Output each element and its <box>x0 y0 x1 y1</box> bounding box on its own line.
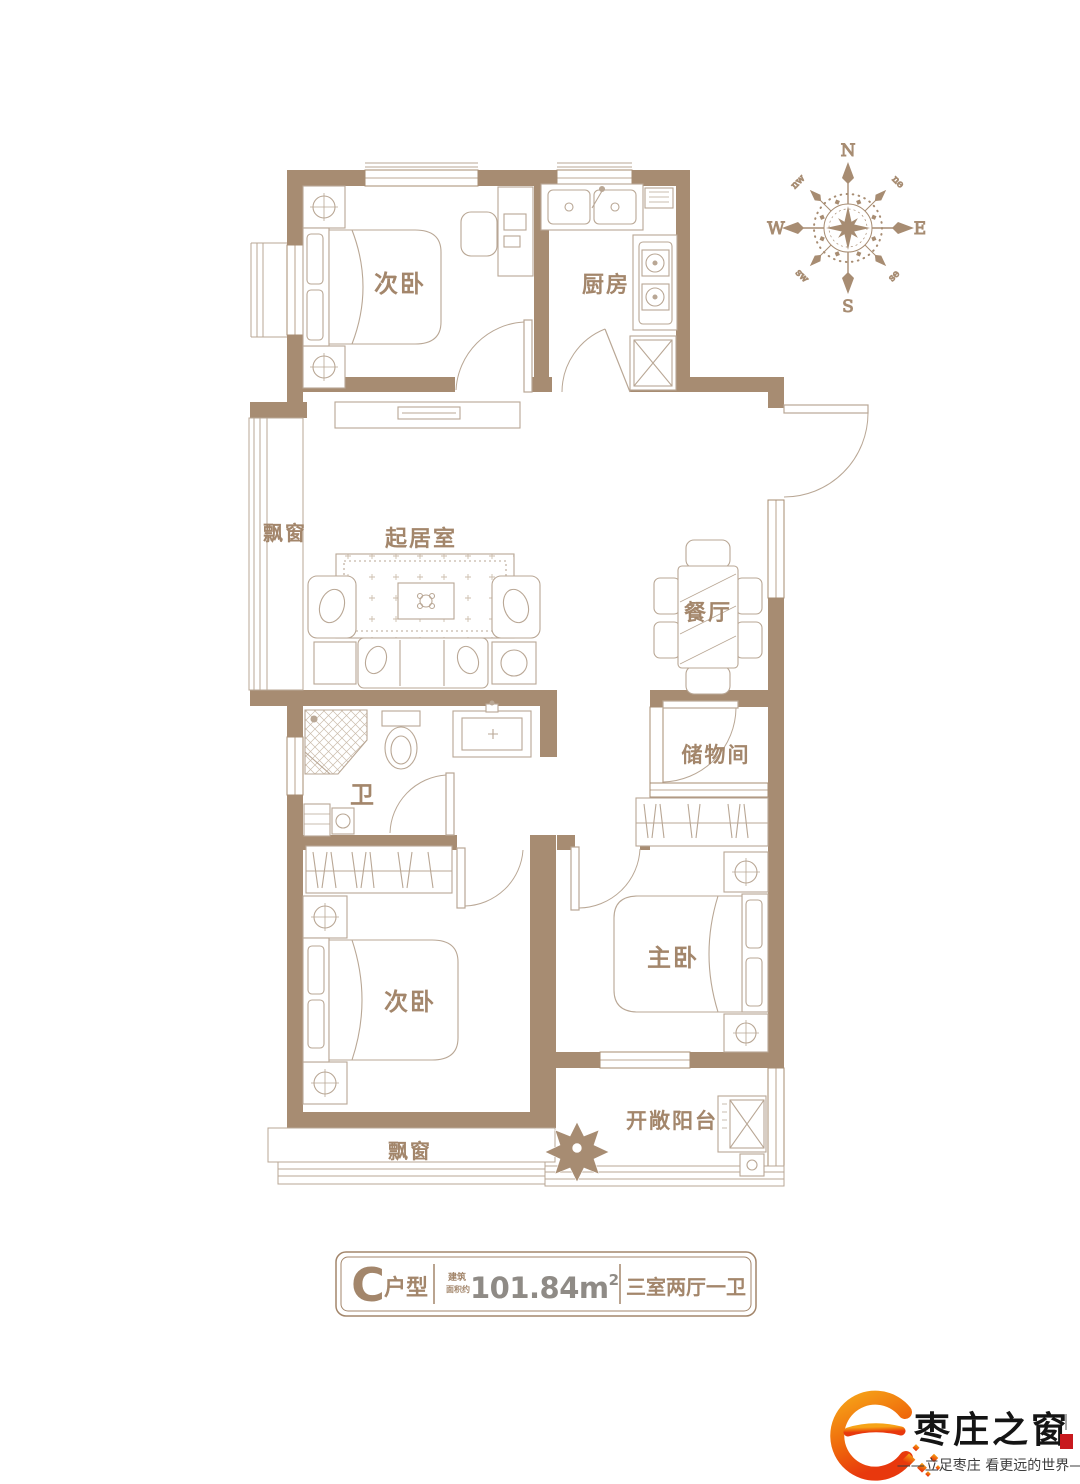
storage-door <box>663 701 738 782</box>
bathroom-door <box>390 773 454 835</box>
coffee-table <box>398 583 454 619</box>
armchair-right <box>492 576 540 638</box>
vanity-sink <box>453 701 531 757</box>
info-bar: C 户型 建筑 面积约 101.84m2 三室两厅一卫 <box>336 1252 756 1316</box>
area-note-line2: 面积约 <box>446 1284 470 1294</box>
area-value: 101.84m2 <box>470 1271 619 1305</box>
tv-console <box>335 402 520 428</box>
compass-e: E <box>914 219 926 239</box>
logo-tagline-text: ——立足枣庄 看更远的世界—— <box>897 1457 1080 1474</box>
compass-ne: ne <box>890 174 907 191</box>
compass-sw: sw <box>793 267 811 285</box>
label-bedroom-top: 次卧 <box>374 270 426 298</box>
unit-type-letter: C <box>351 1258 385 1312</box>
bedroom-top-door <box>456 320 532 392</box>
desk-and-chair <box>461 187 533 276</box>
label-balcony: 开敞阳台 <box>626 1109 718 1133</box>
logo-brand-text: 枣庄之窗 <box>913 1409 1070 1451</box>
kitchen-sink <box>541 184 643 230</box>
label-bay-window-bottom: 飘窗 <box>388 1139 432 1163</box>
compass-n: N <box>841 141 856 161</box>
label-kitchen: 厨房 <box>582 272 630 298</box>
bay-window-left <box>249 418 303 690</box>
label-dining-room: 餐厅 <box>684 601 732 626</box>
compass-se: se <box>886 268 902 284</box>
shower <box>305 710 367 774</box>
fridge <box>630 336 676 390</box>
bedroom-bottom-door <box>457 848 523 908</box>
logo-seal <box>1060 1434 1073 1449</box>
floorplan-page: N S W E nw ne sw se 次卧 厨房 飘窗 起居室 餐厅 卫 储物… <box>0 0 1080 1484</box>
label-living-room: 起居室 <box>384 526 457 552</box>
armchair-left <box>308 576 356 638</box>
label-storage: 储物间 <box>682 743 751 767</box>
kitchen-door <box>562 329 630 392</box>
wardrobe-bottom-bedroom <box>306 846 452 893</box>
side-table-right <box>492 642 536 684</box>
compass-icon: N S W E nw ne sw se <box>767 141 926 317</box>
washing-machine <box>718 1096 766 1152</box>
side-table-left <box>314 642 356 684</box>
unit-type-label: 户型 <box>384 1275 428 1301</box>
toilet <box>382 711 420 769</box>
entry-door <box>784 405 868 497</box>
label-bathroom: 卫 <box>350 781 376 809</box>
compass-nw: nw <box>789 173 808 192</box>
bath-cabinet-washer <box>304 804 354 836</box>
label-master-bedroom: 主卧 <box>647 944 699 972</box>
floorplan-canvas: N S W E nw ne sw se 次卧 厨房 飘窗 起居室 餐厅 卫 储物… <box>0 0 1080 1484</box>
wardrobe-master <box>636 798 768 846</box>
compass-w: W <box>767 219 785 239</box>
area-note-line1: 建筑 <box>448 1271 466 1283</box>
layout-text: 三室两厅一卫 <box>626 1275 746 1299</box>
label-bay-window-left: 飘窗 <box>263 521 307 545</box>
footer-logo: 枣庄之窗 ——立足枣庄 看更远的世界—— <box>837 1398 1080 1477</box>
floor-drain <box>740 1154 764 1176</box>
compass-s: S <box>842 297 854 317</box>
sofa <box>358 638 488 688</box>
label-bedroom-bottom: 次卧 <box>384 988 436 1016</box>
